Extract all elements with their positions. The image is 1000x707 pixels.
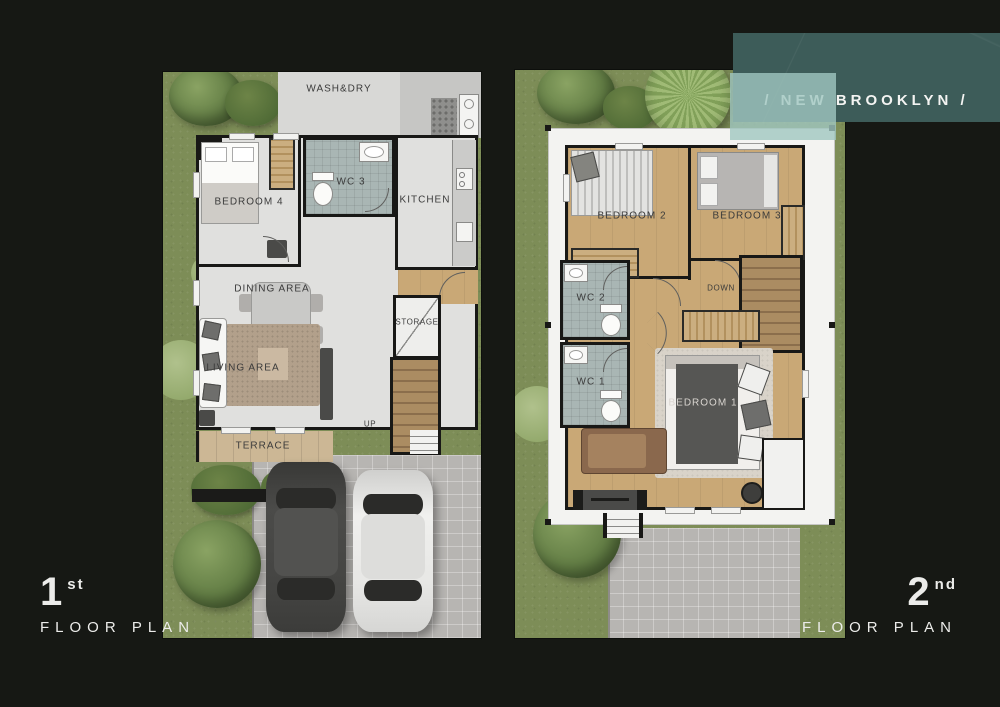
washdry-floor [278, 72, 400, 136]
daybed-icon [581, 428, 667, 474]
dimension-tick [829, 519, 835, 525]
second-floor-ordinal: nd [935, 576, 957, 593]
toilet-icon [599, 304, 623, 336]
window-icon [229, 133, 255, 140]
window-icon [221, 427, 251, 434]
washdry-label: WASH&DRY [306, 84, 371, 95]
driveway-paving [608, 528, 800, 638]
first-floor-caption: 1st FLOOR PLAN [40, 570, 195, 636]
banner-overlay [730, 73, 836, 140]
window-icon [193, 370, 200, 396]
wall [298, 135, 301, 267]
balcony-room [762, 438, 805, 510]
window-icon [711, 507, 741, 514]
bed-icon [201, 142, 259, 224]
first-floor-plan: WASH&DRY BEDROOM 4 WC 3 [163, 72, 481, 638]
wc1-label: WC 1 [577, 377, 606, 388]
first-floor-ordinal: st [67, 576, 84, 593]
washer-icon [459, 94, 479, 138]
car-white-icon [353, 470, 433, 632]
closet-icon [781, 205, 805, 260]
window-icon [665, 507, 695, 514]
dining-label: DINING AREA [234, 284, 309, 295]
wc3-label: WC 3 [337, 177, 366, 188]
bed-icon [697, 152, 779, 210]
closet-icon [269, 138, 295, 190]
window-icon [275, 427, 305, 434]
bedroom2-label: BEDROOM 2 [597, 211, 666, 222]
dimension-tick [545, 519, 551, 525]
second-floor-plan: BEDROOM 2 BEDROOM 3 WC 2 WC 1 DOWN [515, 70, 845, 638]
entry-steps [410, 430, 438, 454]
floor-plan-poster: WASH&DRY BEDROOM 4 WC 3 [0, 0, 1000, 707]
dimension-tick [545, 322, 551, 328]
dimension-tick [829, 322, 835, 328]
down-label: DOWN [707, 284, 735, 293]
terrace-label: TERRACE [236, 441, 291, 452]
sink-icon [359, 142, 389, 162]
storage-room [393, 295, 441, 359]
window-icon [193, 172, 200, 198]
wall [196, 264, 301, 267]
tv-console-icon [573, 490, 647, 510]
tree-icon [537, 70, 615, 124]
toilet-icon [311, 172, 335, 206]
window-icon [563, 174, 570, 202]
pillow-icon [737, 434, 764, 461]
window-icon [802, 370, 809, 398]
second-floor-number: 2 [907, 570, 930, 614]
cushion-icon [201, 320, 221, 340]
pebble-strip [431, 98, 457, 140]
kitchen-label: KITCHEN [400, 195, 451, 206]
car-dark-icon [266, 462, 346, 632]
kitchen-counter [452, 140, 476, 266]
cushion-icon [202, 383, 221, 402]
bedroom4-label: BEDROOM 4 [214, 197, 283, 208]
bedroom3-label: BEDROOM 3 [712, 211, 781, 222]
wall [395, 135, 398, 269]
window-icon [193, 280, 200, 306]
sink-icon [564, 264, 588, 282]
dimension-tick [545, 125, 551, 131]
window-icon [615, 143, 643, 150]
sink-icon [564, 346, 588, 364]
second-floor-label: FLOOR PLAN [802, 619, 957, 636]
storage-label: STORAGE [395, 318, 438, 327]
tv-cabinet-icon [320, 348, 333, 420]
first-floor-number: 1 [40, 570, 63, 614]
second-floor-caption: 2nd FLOOR PLAN [802, 570, 957, 636]
pillow-icon [741, 400, 772, 431]
window-icon [273, 133, 299, 140]
toilet-icon [599, 390, 623, 422]
lamp-icon [199, 410, 215, 426]
first-floor-label: FLOOR PLAN [40, 619, 195, 636]
bush-icon [225, 80, 281, 126]
entry-steps [603, 513, 643, 538]
window-icon [737, 143, 765, 150]
wc2-label: WC 2 [577, 293, 606, 304]
pouf-icon [741, 482, 763, 504]
up-label: UP [364, 420, 376, 429]
living-label: LIVING AREA [206, 363, 279, 374]
wardrobe-icon [682, 310, 760, 342]
chair-icon [309, 294, 323, 312]
bedroom1-label: BEDROOM 1 [668, 398, 737, 409]
